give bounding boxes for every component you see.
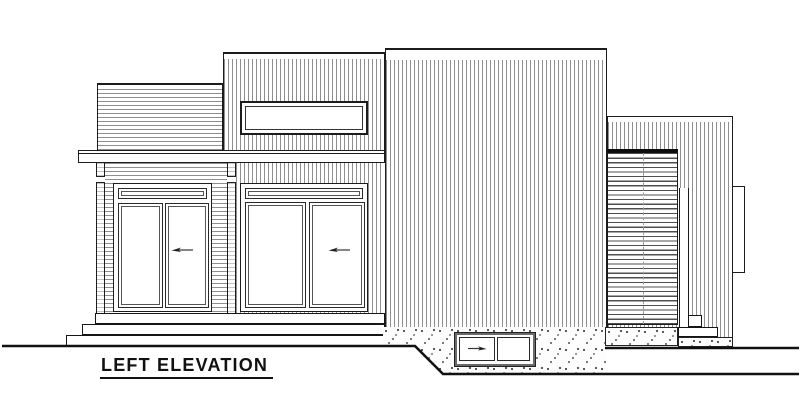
porch-deck-band	[95, 313, 385, 324]
sliding-door-unit-left	[113, 183, 212, 312]
porch-post-center-collar	[227, 176, 236, 183]
clerestory-window-glass	[245, 106, 363, 130]
sliding-door-unit-right	[240, 183, 368, 312]
tall-right-wall-panel	[385, 48, 607, 327]
door-panel-sliding	[309, 202, 365, 308]
porch-fascia-beam	[78, 150, 385, 163]
porch-post-center	[227, 163, 236, 314]
basement-window-arrow-icon	[467, 345, 487, 352]
entry-step-small	[688, 315, 702, 327]
door-glass	[248, 205, 303, 305]
slide-direction-arrow-icon	[171, 246, 194, 254]
slide-direction-arrow-icon	[328, 246, 351, 254]
basement-window-pane-fixed	[497, 337, 530, 361]
porch-post-left	[96, 163, 105, 314]
door-panel-fixed	[245, 202, 306, 308]
entry-corner-post	[679, 188, 689, 327]
slatted-screen-panel	[607, 149, 678, 325]
door-panel-fixed	[118, 203, 163, 308]
door-glass	[312, 205, 362, 305]
transom-glass	[248, 191, 360, 196]
transom-window-left	[118, 188, 207, 199]
far-wall-return	[733, 186, 745, 273]
left-elevation-drawing: LEFT ELEVATION	[0, 0, 800, 420]
transom-window-right	[245, 188, 363, 199]
porch-step-upper	[82, 324, 385, 335]
entry-step-wide	[678, 327, 718, 337]
porch-step-lower	[66, 335, 385, 346]
door-glass	[121, 206, 160, 305]
door-glass	[168, 206, 206, 305]
transom-glass	[121, 191, 204, 196]
basement-window	[455, 333, 535, 366]
upper-left-wall-panel	[97, 83, 223, 150]
entry-concrete-pad	[678, 337, 733, 347]
fascia-trim-line	[79, 153, 384, 154]
wing-foundation-band	[605, 327, 678, 346]
drawing-title: LEFT ELEVATION	[100, 356, 273, 379]
clerestory-window	[240, 101, 368, 135]
porch-post-left-collar	[96, 176, 105, 183]
door-panel-sliding	[165, 203, 209, 308]
